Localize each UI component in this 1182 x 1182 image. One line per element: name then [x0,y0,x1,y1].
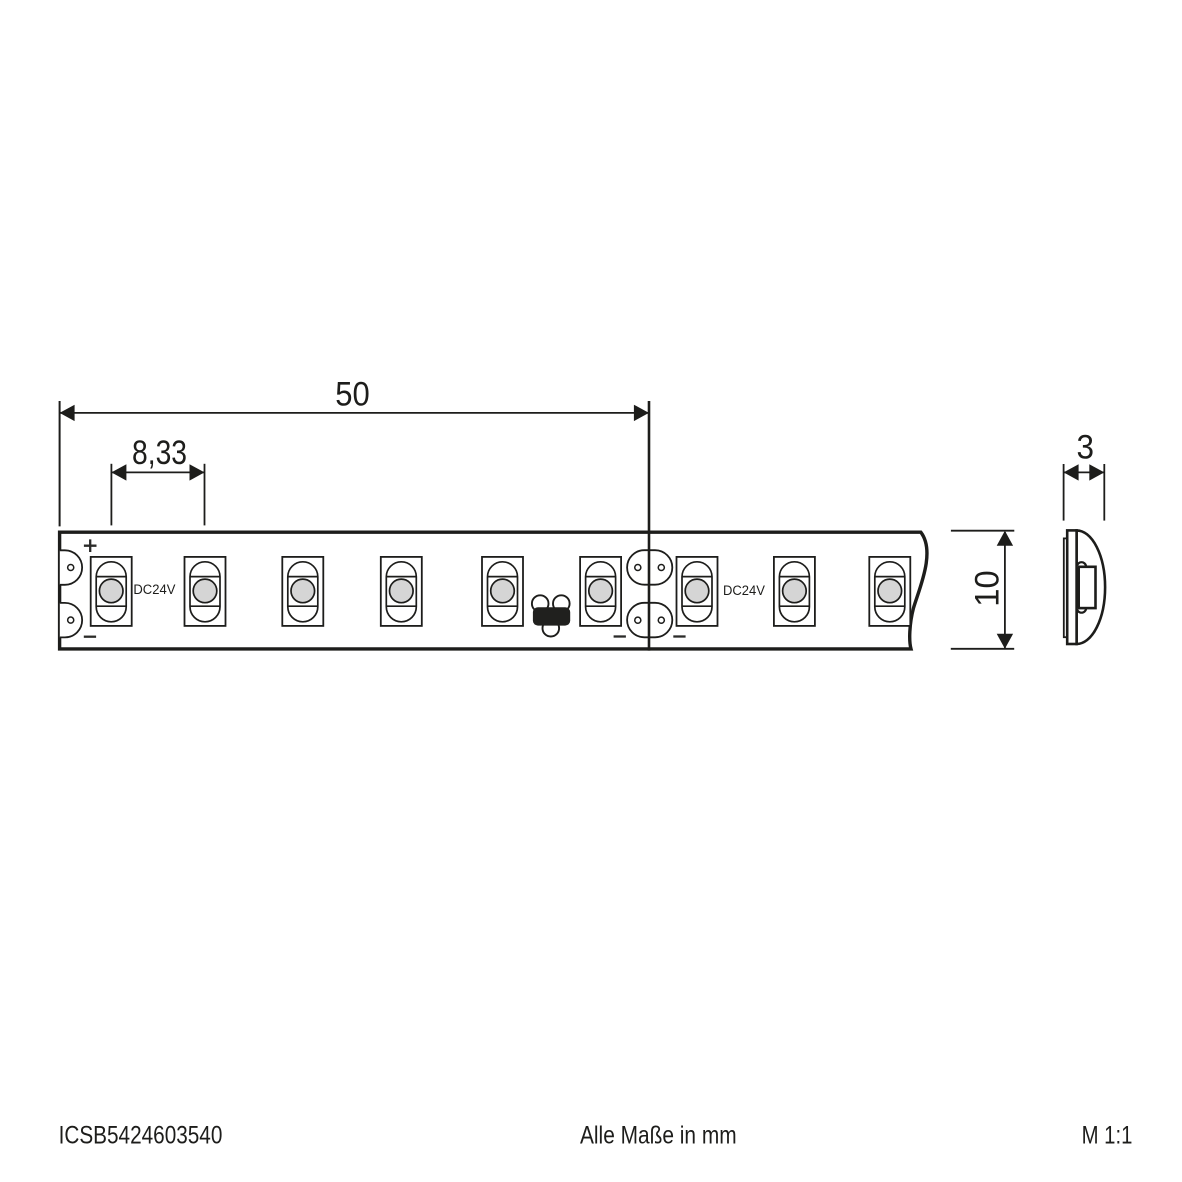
svg-text:DC24V: DC24V [133,582,175,598]
svg-text:M 1:1: M 1:1 [1082,1122,1133,1150]
svg-text:ICSB5424603540: ICSB5424603540 [59,1122,223,1150]
svg-text:DC24V: DC24V [723,583,765,599]
svg-text:8,33: 8,33 [132,434,187,472]
svg-text:Alle Maße in mm: Alle Maße in mm [580,1121,737,1149]
svg-text:50: 50 [335,375,370,413]
svg-text:10: 10 [969,570,1007,606]
svg-text:3: 3 [1076,429,1094,467]
